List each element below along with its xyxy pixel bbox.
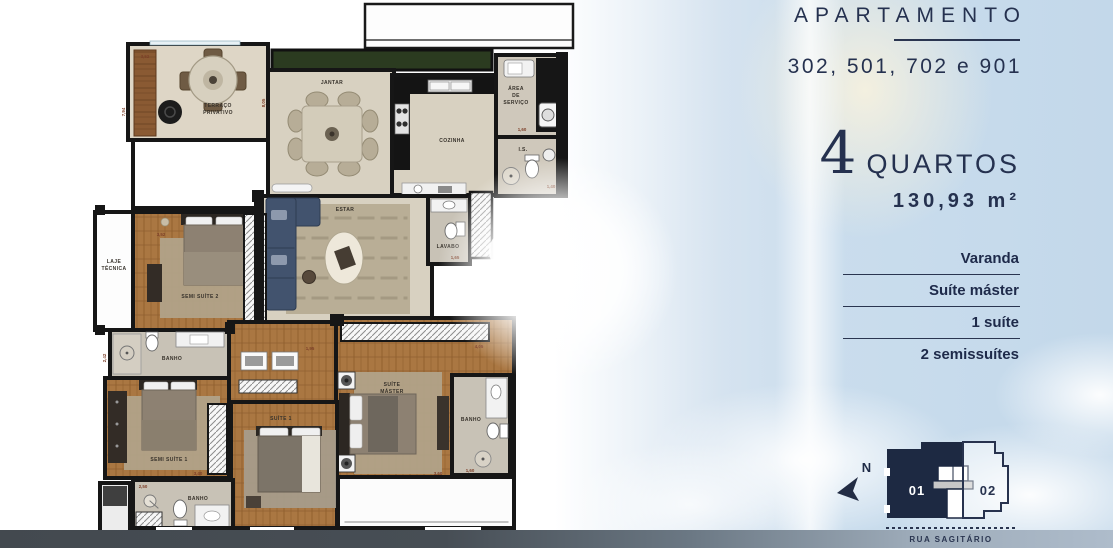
upper-balcony-edge (365, 4, 573, 48)
room-label: ÁREA (508, 85, 524, 92)
room-label: LAJE (107, 259, 122, 265)
north-label: N (862, 460, 872, 475)
bottom-balcony (338, 477, 514, 531)
dim-label: 7,94 (121, 107, 126, 116)
room-label: BANHO (188, 496, 208, 502)
media-console (272, 184, 312, 192)
dim-label: 3,52 (141, 54, 150, 59)
dim-label: 8,05 (261, 98, 266, 107)
features-list: Varanda Suíte máster 1 suíte 2 semissuít… (843, 243, 1020, 370)
floor-plan: TERRAÇO PRIVATIVO 3,52 7,94 (95, 4, 678, 533)
room-label: SUÍTE 1 (270, 414, 292, 422)
dim-label: 2,50 (139, 484, 148, 489)
room-laje-tecnica: LAJE TÉCNICA (95, 212, 133, 330)
feature-item: 1 suíte (843, 307, 1020, 339)
feature-item: 2 semissuítes (843, 339, 1020, 370)
room-semi-suite-2: SEMI SUÍTE 2 3,52 (133, 212, 266, 330)
page-root: TERRAÇO PRIVATIVO 3,52 7,94 (0, 0, 1113, 548)
room-label: BANHO (461, 417, 481, 423)
room-label: BANHO (162, 356, 182, 362)
apartment-title: APARTAMENTO (758, 4, 1027, 28)
hall: 1,95 2,90 (229, 322, 336, 410)
toilet (487, 423, 499, 439)
room-label: JANTAR (321, 80, 343, 86)
title-divider (894, 39, 1020, 41)
room-terraco-privativo: TERRAÇO PRIVATIVO 3,52 7,94 (121, 41, 268, 140)
bedrooms-count: 4 (820, 129, 857, 178)
room-label: SUÍTE (384, 380, 401, 388)
key-plan: N 01 02 (837, 442, 1016, 528)
dim-label: 3,40 (194, 471, 203, 476)
bench (246, 496, 261, 508)
dim-label: 2,42 (102, 353, 107, 362)
feature-item: Varanda (843, 243, 1020, 275)
bedrooms-label: QUARTOS (866, 149, 1020, 180)
info-panel: APARTAMENTO 302, 501, 702 e 901 4 QUARTO… (758, 4, 1020, 370)
room-banho-2: BANHO 2,50 (133, 480, 233, 532)
room-jantar: JANTAR 8,05 (261, 70, 394, 196)
unit-02-footprint (963, 442, 1008, 518)
room-label: ESTAR (336, 207, 355, 213)
room-area-de-servico: ÁREA DE SERVIÇO 1,60 (496, 55, 560, 137)
bed (339, 393, 350, 455)
watermark-logo (438, 158, 678, 382)
north-arrow-icon (837, 477, 859, 501)
shaft (100, 483, 130, 532)
room-banho-master: BANHO 1,60 (452, 375, 510, 475)
side-table (303, 271, 316, 284)
tv-cabinet (147, 264, 162, 302)
dim-label: 1,95 (306, 346, 315, 351)
feature-item: Suíte máster (843, 275, 1020, 307)
room-label: DE (512, 93, 520, 99)
wardrobe (208, 404, 227, 474)
room-label: I.S. (518, 147, 527, 153)
room-estar: ESTAR (262, 184, 432, 322)
unit-02-label: 02 (980, 483, 996, 498)
dim-label: 1,60 (466, 468, 475, 473)
room-label: SERVIÇO (503, 100, 528, 106)
room-label: TERRAÇO (204, 103, 232, 109)
room-label: MÁSTER (380, 388, 404, 395)
wood-deck (134, 50, 156, 136)
dim-label: 3,52 (157, 232, 166, 237)
unit-01-label: 01 (909, 483, 925, 498)
unit-area: 130,93 m² (758, 190, 1020, 213)
stove (395, 104, 409, 134)
room-semi-suite-1: SEMI SUÍTE 1 3,40 (105, 378, 229, 478)
unit-numbers: 302, 501, 702 e 901 (758, 55, 1022, 79)
planter (272, 50, 492, 70)
room-label: SEMI SUÍTE 2 (181, 292, 218, 300)
grill (158, 100, 182, 124)
room-label: SEMI SUÍTE 1 (150, 455, 187, 463)
room-banho-1: BANHO 2,42 (102, 330, 229, 378)
bottom-bar: APARTAMENTOS 302, 501, 702 E 901 RUA SAG… (0, 530, 1113, 548)
open-void (133, 140, 268, 208)
room-label: TÉCNICA (101, 264, 126, 272)
toilet (174, 500, 187, 518)
dim-label: 1,60 (518, 127, 527, 132)
street-name: RUA SAGITÁRIO (909, 535, 992, 544)
room-label: COZINHA (439, 138, 465, 144)
bench (239, 380, 297, 393)
ottoman (437, 396, 449, 450)
room-suite-1: SUÍTE 1 (231, 402, 337, 528)
bedrooms-row: 4 QUARTOS (758, 129, 1020, 180)
toilet (146, 335, 158, 351)
room-label: PRIVATIVO (203, 110, 233, 116)
